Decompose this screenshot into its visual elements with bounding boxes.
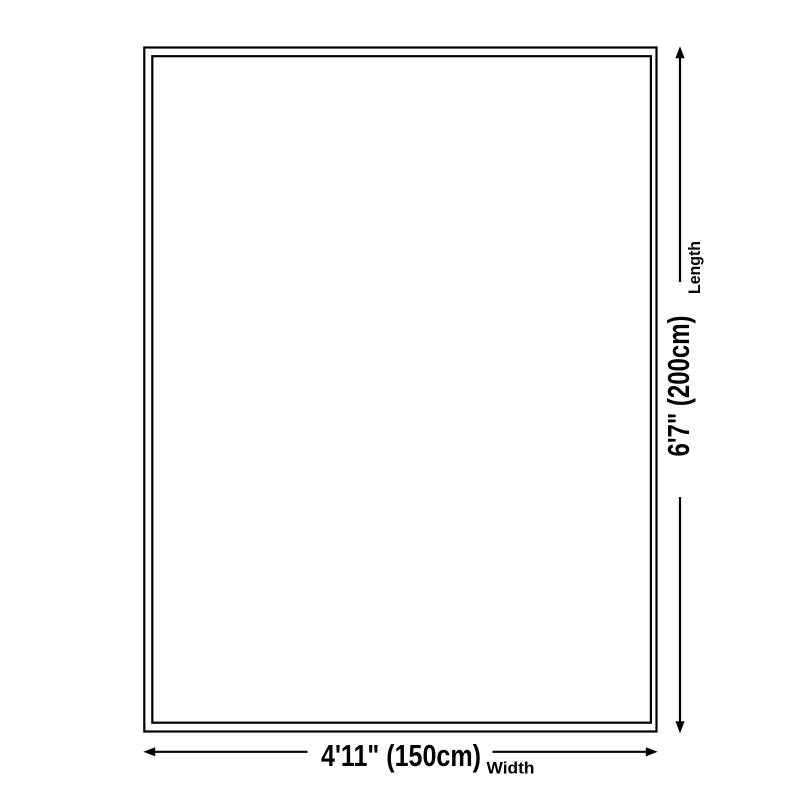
svg-text:6'7" (200cm): 6'7" (200cm) [662,316,696,457]
svg-text:Width: Width [487,760,535,778]
svg-text:Length: Length [686,241,704,294]
svg-text:4'11" (150cm): 4'11" (150cm) [321,739,481,773]
